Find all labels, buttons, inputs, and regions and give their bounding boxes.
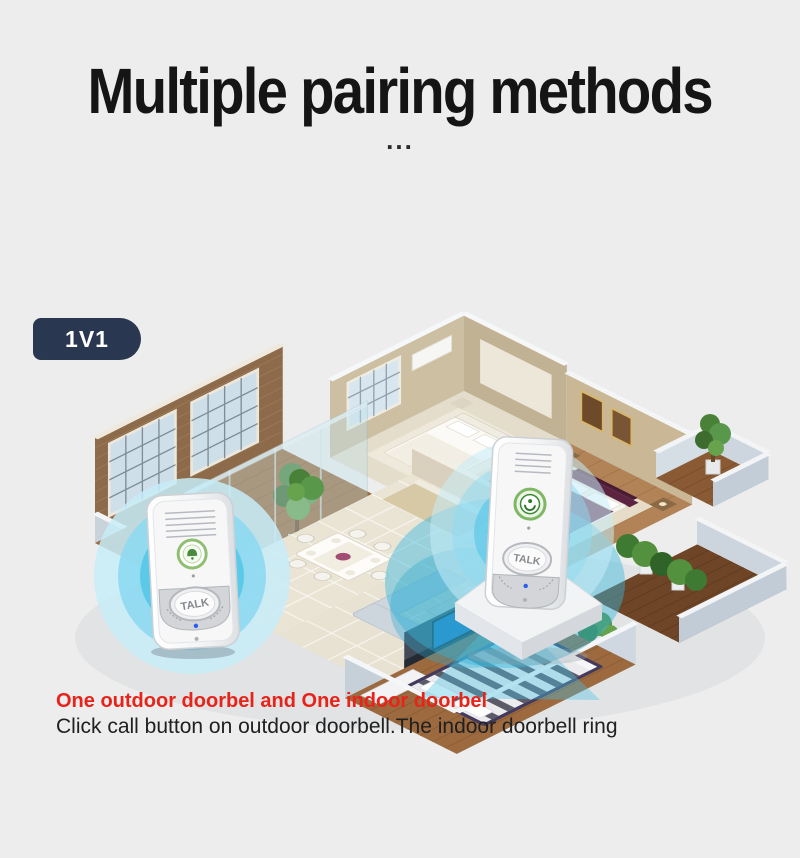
caption-body: Click call button on outdoor doorbell.Th…: [56, 714, 618, 740]
title-ellipsis: ...: [0, 127, 800, 153]
caption-headline: One outdoor doorbel and One indoor doorb…: [56, 689, 618, 714]
outdoor-doorbell-device: TALK: [146, 492, 240, 659]
caption: One outdoor doorbel and One indoor doorb…: [56, 689, 618, 740]
page: { "background": "#ededed", "title": { "t…: [0, 58, 800, 858]
page-title-text: Multiple pairing methods: [88, 58, 712, 125]
page-title: Multiple pairing methods: [0, 58, 800, 125]
